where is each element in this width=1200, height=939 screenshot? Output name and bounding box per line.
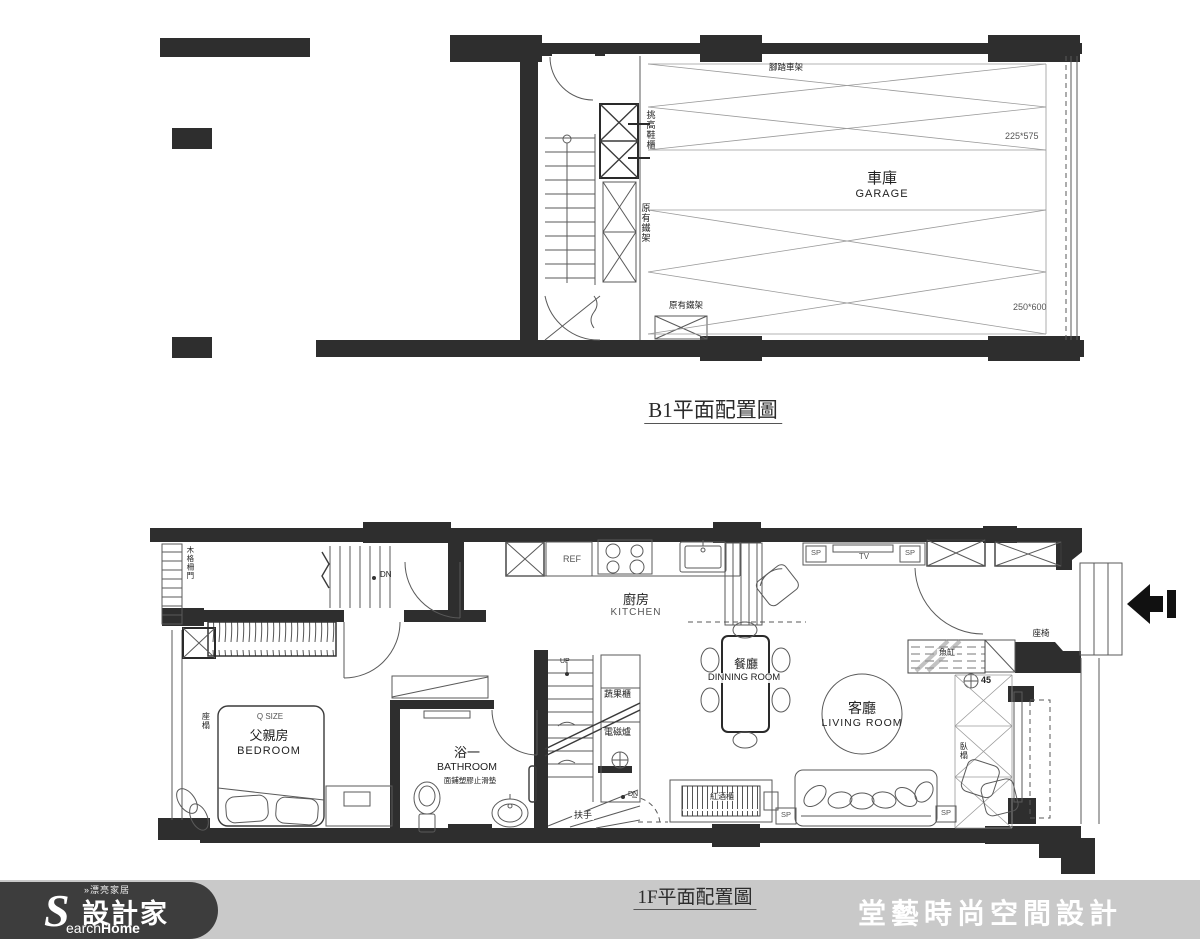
b1-stairs <box>545 57 600 340</box>
f1-kitchen-label-zh: 廚房 <box>623 593 649 607</box>
f1-living-label-en: LIVING ROOM <box>821 718 902 729</box>
f1-45-label: 45 <box>981 676 991 685</box>
b1-garage-label-en: GARAGE <box>853 189 910 201</box>
searchome-logo: »漂亮家居 S 設計家 earchHome <box>0 882 218 939</box>
b1-bike-rack-label: 腳踏車架 <box>769 63 803 72</box>
logo-en-home: Home <box>101 920 140 936</box>
b1-shoe-cabinet-label: 挑高鞋櫃 <box>645 110 654 150</box>
b1-plan-title: B1平面配置圖 <box>644 398 782 424</box>
b1-garage-rack-pattern <box>648 64 1046 334</box>
b1-iron-rack-bottom <box>655 316 707 339</box>
f1-veg-cabinet-label: 蔬果櫃 <box>602 690 633 699</box>
b1-iron-rack-label-v: 原有鐵架 <box>640 203 649 243</box>
f1-wood-door-label: 木格柵門 <box>186 546 194 580</box>
f1-fish-tank-label: 魚缸 <box>937 649 957 657</box>
f1-induction-label: 電磁爐 <box>602 728 633 737</box>
f1-symbol-45 <box>964 674 978 688</box>
f1-dining-table <box>701 622 790 748</box>
f1-tv-label: TV <box>859 553 869 561</box>
f1-bath-label-zh: 浴一 <box>454 746 480 760</box>
entrance-arrow-icon <box>1127 584 1176 624</box>
logo-en-text: earchHome <box>66 920 140 936</box>
logo-en-earch: earch <box>66 920 101 936</box>
floorplan-page: 腳踏車架 225*575 車庫 GARAGE 250*600 挑高鞋櫃 原有鐵架… <box>0 0 1200 939</box>
f1-stairs-dn <box>322 546 460 618</box>
f1-sp-label-3: SP <box>781 811 791 819</box>
f1-dining-label-en: DINNING ROOM <box>706 673 782 683</box>
b1-dim-lower: 250*600 <box>1013 303 1047 312</box>
b1-right-wall <box>1071 56 1077 340</box>
f1-daybed-label: 臥榻 <box>957 742 969 760</box>
b1-walls <box>160 35 1084 361</box>
f1-ref-label: REF <box>563 555 581 564</box>
f1-living-label-zh: 客廳 <box>848 701 876 716</box>
f1-stairs-up <box>545 655 668 828</box>
b1-iron-rack-label-h: 原有鐵架 <box>667 301 705 310</box>
f1-seat-bench <box>985 640 1015 672</box>
f1-seat-label: 座椅 <box>1032 629 1049 638</box>
f1-bedroom-label-en: BEDROOM <box>237 746 301 758</box>
f1-bath-label-en: BATHROOM <box>437 762 497 773</box>
f1-entry-closets <box>927 540 1061 566</box>
f1-entry-steps <box>1080 563 1122 824</box>
footer-bar: »漂亮家居 S 設計家 earchHome 堂藝時尚空間設計 <box>0 880 1200 939</box>
f1-armchair <box>754 562 801 608</box>
f1-wine-cabinet-label: 紅酒櫃 <box>708 793 736 801</box>
b1-shoe-cabinet <box>600 104 650 178</box>
f1-sofa <box>795 770 937 826</box>
f1-qsize-label: Q SIZE <box>257 713 283 721</box>
f1-seat-platform-label: 座榻 <box>201 712 209 730</box>
f1-pillar <box>688 543 806 625</box>
f1-handrail-label: 扶手 <box>572 811 594 820</box>
f1-sp-label-2: SP <box>905 549 915 557</box>
f1-bedroom-door <box>344 622 400 678</box>
f1-dn2-label: DN <box>628 791 638 798</box>
f1-dining-label-zh: 餐廳 <box>732 658 760 671</box>
f1-plan <box>150 522 1176 874</box>
f1-sp-label-1: SP <box>811 549 821 557</box>
f1-entry-door <box>915 568 983 634</box>
b1-plan <box>160 35 1084 361</box>
f1-up-label: UP <box>560 658 570 665</box>
f1-bedroom-label-zh: 父親房 <box>249 729 288 743</box>
f1-sp-label-4: SP <box>941 809 951 817</box>
b1-dim-upper: 225*575 <box>1005 132 1039 141</box>
f1-kitchen <box>506 540 740 576</box>
f1-bath-note-label: 面鋪塑膠止滑墊 <box>444 777 497 785</box>
f1-dn-label: DN <box>380 571 392 579</box>
b1-iron-rack-vertical <box>603 182 636 282</box>
f1-kitchen-label-en: KITCHEN <box>611 608 662 619</box>
company-name: 堂藝時尚空間設計 <box>858 892 1122 932</box>
f1-plan-title: 1F平面配置圖 <box>633 887 756 910</box>
b1-garage-label-zh: 車庫 <box>865 171 899 187</box>
